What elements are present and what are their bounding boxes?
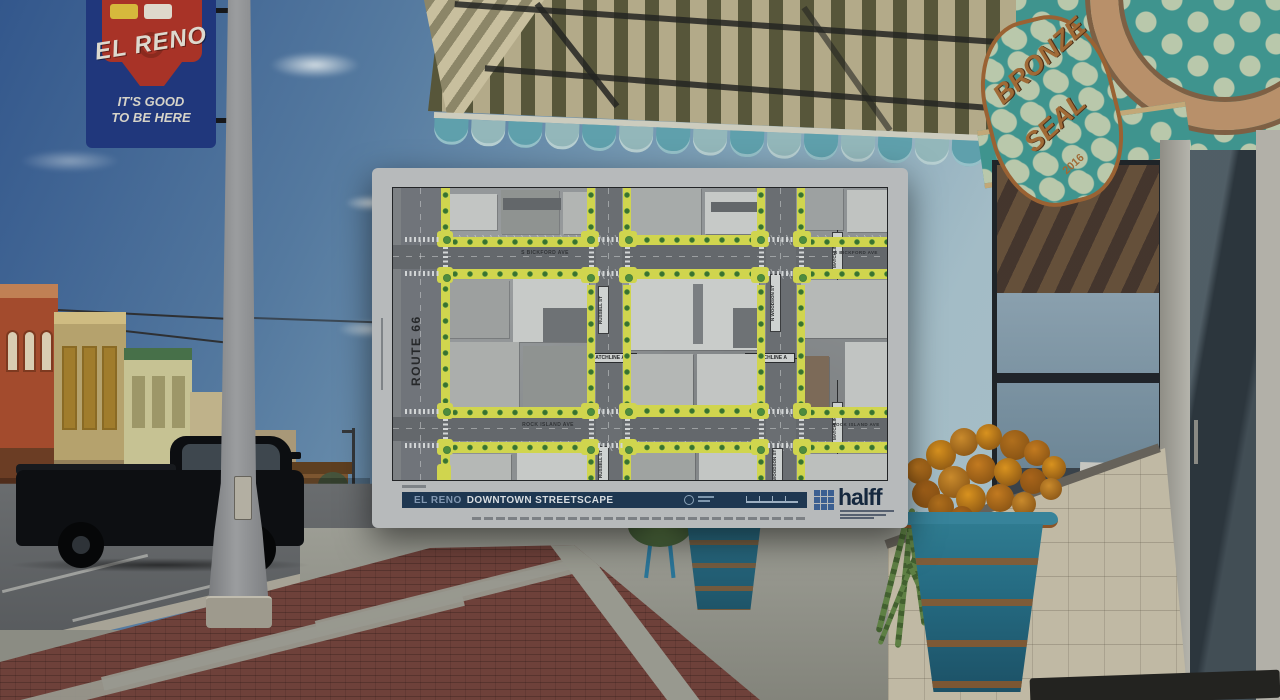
street-tree xyxy=(443,446,451,454)
aerial-plan-map: MATCHLINE A MATCHLINE A MATCHLINE D MATC… xyxy=(392,187,888,481)
map-building xyxy=(801,454,887,481)
awning-scallop-tab xyxy=(581,124,616,151)
plot-stamp xyxy=(402,485,426,488)
wheel-rim xyxy=(72,536,90,554)
scale-bar xyxy=(746,496,798,503)
awning-scallop-tab xyxy=(914,138,949,165)
street-tree xyxy=(757,408,765,416)
window xyxy=(102,346,117,430)
streetscape-highlight-band xyxy=(797,188,805,231)
map-building xyxy=(629,452,695,481)
streetscape-highlight-band xyxy=(587,285,595,403)
truck-mirror xyxy=(290,452,301,459)
streetscape-highlight-band xyxy=(623,285,631,403)
marigold-bloom xyxy=(1042,456,1066,480)
halff-logo: halff xyxy=(814,486,906,524)
glass-door[interactable] xyxy=(1190,150,1258,700)
crosswalk-marking xyxy=(759,419,764,439)
streetscape-highlight-band xyxy=(625,442,766,453)
logo-square xyxy=(828,497,834,503)
map-building xyxy=(845,342,887,412)
rock-island-label-east: ROCK ISLAND AVE xyxy=(821,422,888,427)
road-centerline xyxy=(393,428,888,429)
woodson-label-top: N WOODSON ST xyxy=(770,274,781,332)
marigold-bloom xyxy=(966,454,996,484)
seal-caption-bar xyxy=(698,500,710,502)
cloud xyxy=(270,52,360,78)
streetscape-highlight-band xyxy=(441,188,450,233)
streetscape-plan-sheet[interactable]: MATCHLINE A MATCHLINE A MATCHLINE D MATC… xyxy=(372,168,908,528)
arch-window xyxy=(6,330,19,372)
utility-pole xyxy=(200,0,280,632)
road-centerline xyxy=(780,188,781,481)
woodson-label-bottom: WOODSON ST xyxy=(772,448,783,481)
crosswalk-marking xyxy=(405,237,439,242)
crosswalk-marking xyxy=(443,247,448,267)
street-tree xyxy=(625,236,633,244)
plan-title-bar: EL RENO DOWNTOWN STREETSCAPE xyxy=(402,492,807,508)
awning-scallop-tab xyxy=(434,118,469,145)
crosswalk-marking xyxy=(768,237,794,242)
map-building xyxy=(629,354,693,412)
map-building xyxy=(449,342,519,410)
map-parking-lot xyxy=(543,308,589,342)
street-tree xyxy=(625,446,633,454)
cornice xyxy=(54,312,126,324)
cloud xyxy=(20,150,120,172)
map-building xyxy=(697,354,759,412)
streetscape-highlight-band xyxy=(757,285,765,403)
bickford-label-east: S BICKFORD AVE xyxy=(823,250,888,255)
street-tree xyxy=(757,274,765,282)
awning-scallop-tab xyxy=(766,132,801,159)
curb-bulb-out xyxy=(437,464,451,481)
street-tree xyxy=(587,236,595,244)
plan-title-main: DOWNTOWN STREETSCAPE xyxy=(467,495,614,506)
pole-sign-plate xyxy=(234,476,252,520)
crosswalk-marking xyxy=(589,247,594,267)
halff-logo-text: halff xyxy=(838,484,882,511)
map-building xyxy=(801,188,843,230)
streetscape-highlight-band xyxy=(448,407,589,418)
road-rock-island xyxy=(393,417,888,441)
streetscape-highlight-band xyxy=(625,405,766,417)
window xyxy=(62,346,77,430)
map-building xyxy=(501,190,559,234)
door-frame-right xyxy=(1256,130,1280,700)
streetscape-highlight-band xyxy=(625,235,766,245)
arch-window xyxy=(40,330,53,372)
banner-tagline-1: IT'S GOOD xyxy=(86,94,216,109)
crosswalk-marking xyxy=(768,271,794,276)
seal-caption-bar xyxy=(698,496,714,498)
road-bickford xyxy=(393,245,888,269)
streetscape-highlight-band xyxy=(757,455,765,481)
crosswalk-marking xyxy=(768,409,794,414)
streetscape-highlight-band xyxy=(805,442,888,453)
awning-scallop-tab xyxy=(692,129,727,156)
crosswalk-marking xyxy=(598,443,624,448)
street-tree xyxy=(799,274,807,282)
map-parking-lot xyxy=(733,308,759,348)
plot-stamp-vertical xyxy=(381,318,383,390)
map-parking-lot xyxy=(711,202,759,212)
awning-scallop-tab xyxy=(655,127,690,154)
streetscape-highlight-band xyxy=(587,188,595,231)
street-tree xyxy=(587,446,595,454)
storefront-awning xyxy=(424,0,1052,168)
crosswalk-marking xyxy=(759,247,764,267)
streetscape-highlight-band xyxy=(587,455,595,481)
road-woodson xyxy=(766,188,796,481)
crosswalk-marking xyxy=(405,443,439,448)
marigold-bloom xyxy=(994,458,1022,486)
crosswalk-marking xyxy=(405,271,439,276)
truck-wheel xyxy=(58,522,104,568)
marigold-bloom xyxy=(976,424,1002,450)
marigold-bloom xyxy=(986,484,1014,512)
flower-planter xyxy=(886,420,1076,692)
city-seal-icon xyxy=(684,495,694,505)
street-light-arm xyxy=(342,430,355,433)
window xyxy=(82,346,97,430)
streetscape-photo-scene: EL RENO IT'S GOOD TO BE HERE BRONZE SEAL… xyxy=(0,0,1280,700)
streetscape-highlight-band xyxy=(805,407,888,418)
map-parking-lot xyxy=(503,198,561,210)
crosswalk-marking xyxy=(625,419,630,439)
crosswalk-marking xyxy=(598,271,620,276)
crosswalk-marking xyxy=(768,443,794,448)
awning-scallop-tab xyxy=(544,123,579,150)
streetscape-highlight-band xyxy=(805,269,888,279)
route66-label: ROUTE 66 xyxy=(409,300,423,386)
streetscape-highlight-band xyxy=(805,237,888,247)
awning-scallop-tab xyxy=(729,130,764,157)
awning-scallop-tab xyxy=(803,134,838,161)
street-tree xyxy=(443,408,451,416)
el-reno-banner: EL RENO IT'S GOOD TO BE HERE xyxy=(86,0,216,148)
streetscape-highlight-band xyxy=(441,282,450,404)
banner-sign-square-yellow xyxy=(110,4,138,19)
map-building xyxy=(449,454,511,481)
awning-scallop-tab xyxy=(471,120,506,147)
street-tree xyxy=(757,446,765,454)
map-building xyxy=(449,280,509,338)
street-tree xyxy=(757,236,765,244)
street-tree xyxy=(443,274,451,282)
street-tree xyxy=(799,408,807,416)
door-reflection xyxy=(1190,150,1258,700)
streetscape-highlight-band xyxy=(797,285,805,403)
logo-square xyxy=(814,504,820,510)
banner-tagline-2: TO BE HERE xyxy=(86,110,216,125)
door-handle xyxy=(1194,420,1198,464)
logo-square xyxy=(828,490,834,496)
street-tree xyxy=(799,236,807,244)
crosswalk-marking xyxy=(598,409,620,414)
window xyxy=(172,376,185,428)
window xyxy=(152,376,165,428)
russell-label-top: RUSSELL ST xyxy=(598,286,609,334)
arch-window xyxy=(23,330,36,372)
street-tree xyxy=(625,408,633,416)
street-tree xyxy=(625,274,633,282)
road-centerline xyxy=(608,188,609,481)
street-tree xyxy=(443,236,451,244)
awning-scallop-tab xyxy=(840,135,875,162)
marigold-bloom xyxy=(950,428,978,456)
crosswalk-marking xyxy=(405,409,439,414)
streetscape-highlight-band xyxy=(625,269,766,279)
streetscape-highlight-band xyxy=(623,188,631,231)
map-building xyxy=(847,190,887,232)
logo-square xyxy=(821,497,827,503)
disclaimer-text-line xyxy=(472,517,808,520)
street-tree xyxy=(587,408,595,416)
map-building xyxy=(629,188,701,236)
logo-square xyxy=(821,504,827,510)
plan-title-prefix: EL RENO xyxy=(414,495,462,506)
pole-base xyxy=(206,596,272,628)
map-building xyxy=(699,452,759,481)
halff-address-line xyxy=(840,510,894,512)
streetscape-highlight-band xyxy=(623,455,631,481)
map-parking-lot xyxy=(693,284,703,344)
halff-address-line xyxy=(840,517,874,519)
halff-address-line xyxy=(840,514,886,516)
bickford-label-west: S BICKFORD AVE xyxy=(485,250,605,256)
halff-logo-squares xyxy=(814,490,836,512)
banner-sign-square-white xyxy=(144,4,172,19)
street-tree xyxy=(587,274,595,282)
window xyxy=(132,376,145,428)
road-centerline xyxy=(393,256,888,257)
streetscape-highlight-band xyxy=(448,237,589,247)
road-russell xyxy=(596,188,622,481)
window-mullion xyxy=(997,373,1159,383)
streetscape-highlight-band xyxy=(797,455,805,481)
logo-square xyxy=(828,504,834,510)
crosswalk-marking xyxy=(799,247,804,267)
crosswalk-marking xyxy=(799,419,804,439)
map-building xyxy=(801,280,887,338)
banner-sign-leg xyxy=(122,62,182,86)
map-building xyxy=(523,346,589,408)
crosswalk-marking xyxy=(598,237,620,242)
streetscape-highlight-band xyxy=(448,442,589,453)
awning-scallop-tab xyxy=(507,121,542,148)
crosswalk-marking xyxy=(443,419,448,439)
crosswalk-marking xyxy=(625,247,630,267)
crosswalk-marking xyxy=(589,419,594,439)
logo-square xyxy=(821,490,827,496)
street-tree xyxy=(799,446,807,454)
cornice-green xyxy=(124,348,192,360)
logo-square xyxy=(814,497,820,503)
streetscape-highlight-band xyxy=(448,269,589,279)
russell-label-bottom: RUSSELL ST xyxy=(598,446,609,481)
streetscape-highlight-band xyxy=(757,188,765,231)
cornice xyxy=(0,284,58,298)
logo-square xyxy=(814,490,820,496)
map-building xyxy=(449,194,497,230)
map-building xyxy=(705,192,759,234)
awning-scallop-tab xyxy=(877,137,912,164)
marigold-bloom xyxy=(1040,478,1062,500)
map-building xyxy=(517,452,587,481)
awning-scallop-tab xyxy=(618,126,653,153)
